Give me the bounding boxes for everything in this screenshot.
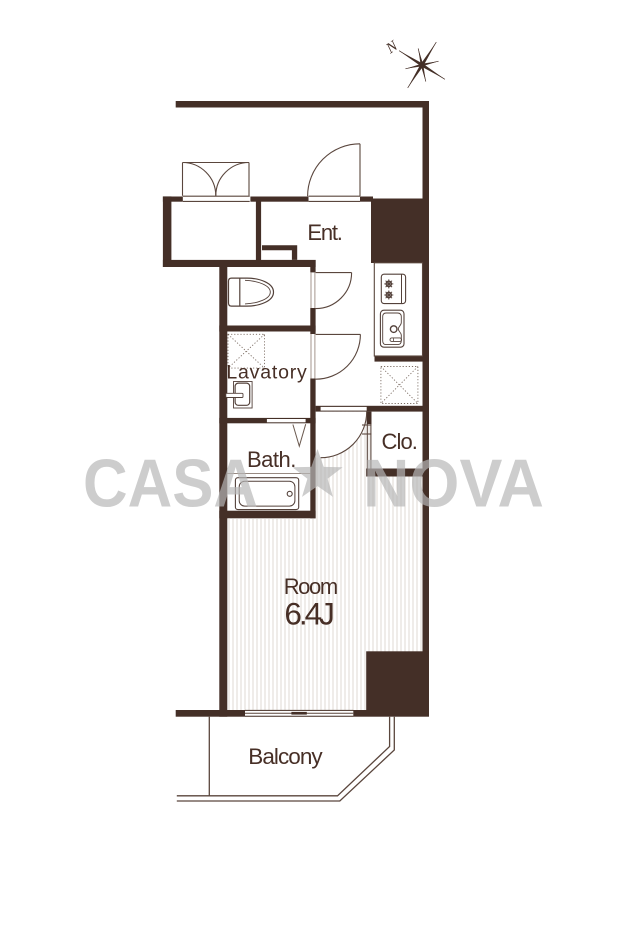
- svg-text:6.4J: 6.4J: [284, 595, 333, 631]
- svg-text:NOVA: NOVA: [363, 446, 544, 522]
- svg-text:Lavatory: Lavatory: [226, 361, 307, 383]
- svg-text:Ent.: Ent.: [307, 220, 341, 245]
- svg-text:CASA: CASA: [83, 446, 258, 522]
- svg-text:Balcony: Balcony: [248, 744, 323, 769]
